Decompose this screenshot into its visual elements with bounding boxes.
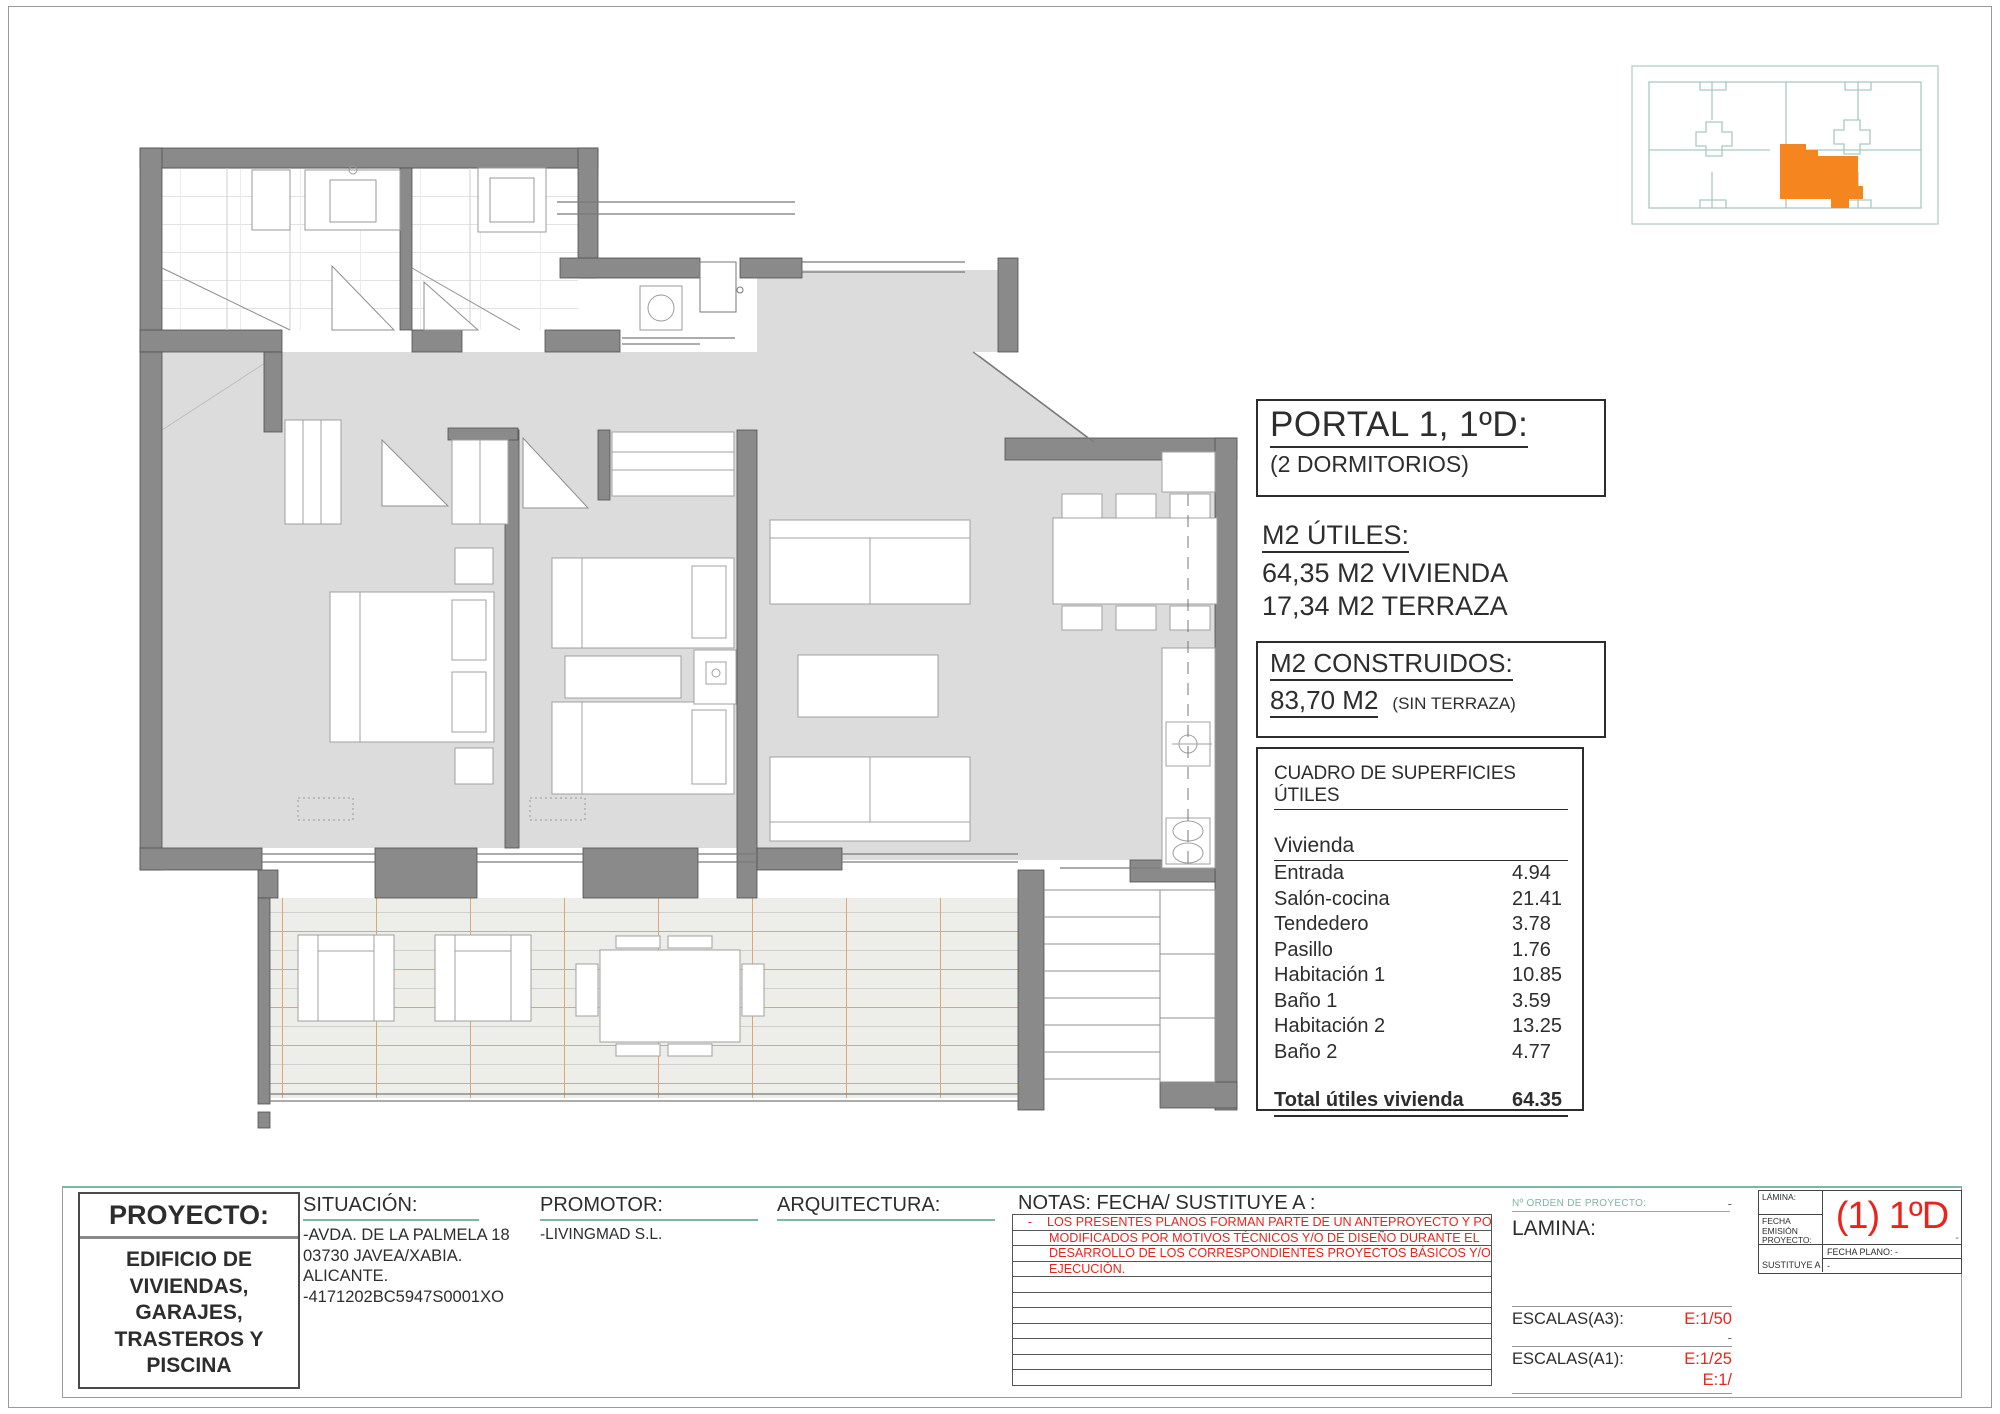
promotor-value: -LIVINGMAD S.L.: [540, 1226, 760, 1244]
portal-subtitle: (2 DORMITORIOS): [1270, 451, 1592, 478]
notas-table: - LOS PRESENTES PLANOS FORMAN PARTE DE U…: [1012, 1214, 1492, 1386]
stamp-empty-cell: [1759, 1245, 1823, 1259]
orden-proyecto-section: Nº ORDEN DE PROYECTO: -: [1512, 1198, 1732, 1212]
stamp-fecha-emision-label: FECHA EMISIÓN PROYECTO:: [1759, 1215, 1823, 1245]
stamp-unit-code: (1) 1ºD -: [1823, 1191, 1961, 1245]
notas-row-empty: [1013, 1339, 1491, 1355]
surface-table-group: Vivienda: [1274, 834, 1568, 861]
arquitectura-label: ARQUITECTURA:: [777, 1194, 997, 1217]
notas-row: MODIFICADOS POR MOTIVOS TÉCNICOS Y/O DE …: [1013, 1231, 1491, 1247]
escalas-a3-value: E:1/50: [1684, 1310, 1732, 1329]
m2-utiles-heading: M2 ÚTILES:: [1262, 520, 1409, 553]
arquitectura-underline: [777, 1219, 995, 1221]
m2-construidos-box: M2 CONSTRUIDOS: 83,70 M2 (SIN TERRAZA): [1256, 641, 1606, 738]
situacion-section: SITUACIÓN: -AVDA. DE LA PALMELA 18 03730…: [303, 1194, 543, 1307]
stamp-fecha-plano: FECHA PLANO: -: [1823, 1245, 1961, 1259]
orden-proyecto-value: -: [1728, 1196, 1732, 1211]
drawing-sheet: PORTAL 1, 1ºD: (2 DORMITORIOS) M2 ÚTILES…: [0, 0, 2000, 1414]
promotor-underline: [540, 1219, 758, 1221]
notas-row: - LOS PRESENTES PLANOS FORMAN PARTE DE U…: [1013, 1215, 1491, 1231]
notas-row-empty: [1013, 1293, 1491, 1309]
table-row: Habitación 110.85: [1274, 963, 1568, 989]
stamp-code-dash: -: [1955, 1233, 1958, 1244]
notas-row-empty: [1013, 1324, 1491, 1340]
surface-table-total: Total útiles vivienda 64.35: [1274, 1089, 1568, 1117]
escalas-a1-value2: E:1/: [1512, 1371, 1732, 1393]
notas-row-empty: [1013, 1277, 1491, 1293]
orden-underline: [1512, 1211, 1730, 1212]
notas-row-empty: [1013, 1370, 1491, 1385]
situacion-address: -AVDA. DE LA PALMELA 18 03730 JAVEA/XABI…: [303, 1225, 543, 1307]
surface-table-rows: Entrada4.94 Salón-cocina21.41 Tendedero3…: [1274, 861, 1568, 1065]
stamp-sustituye-value: -: [1823, 1259, 1961, 1272]
proyecto-divider: [80, 1236, 298, 1239]
portal-info-box: PORTAL 1, 1ºD: (2 DORMITORIOS): [1256, 399, 1606, 497]
situacion-underline: [303, 1219, 479, 1221]
stairwell: [1044, 890, 1215, 1082]
escalas-a3-row: ESCALAS(A3): E:1/50: [1512, 1307, 1732, 1331]
stamp-lamina-label: LÁMINA:: [1759, 1191, 1823, 1215]
m2-construidos-value: 83,70 M2: [1270, 685, 1378, 718]
stamp-sustituye-label: SUSTITUYE A: [1759, 1259, 1823, 1272]
proyecto-box: PROYECTO: EDIFICIO DE VIVIENDAS, GARAJES…: [78, 1192, 300, 1389]
surface-table-title: CUADRO DE SUPERFICIES ÚTILES: [1274, 763, 1568, 810]
escalas-a1-value: E:1/25: [1684, 1350, 1732, 1369]
proyecto-label: PROYECTO:: [80, 1200, 298, 1231]
m2-utiles-vivienda: 64,35 M2 VIVIENDA: [1262, 557, 1582, 590]
m2-construidos-note: (SIN TERRAZA): [1392, 694, 1515, 714]
escalas-a3-label: ESCALAS(A3):: [1512, 1310, 1624, 1329]
promotor-section: PROMOTOR: -LIVINGMAD S.L.: [540, 1194, 760, 1244]
portal-title: PORTAL 1, 1ºD:: [1270, 405, 1528, 448]
table-row: Entrada4.94: [1274, 861, 1568, 887]
notas-row-empty: [1013, 1308, 1491, 1324]
escalas-section: ESCALAS(A3): E:1/50 - ESCALAS(A1): E:1/2…: [1512, 1306, 1732, 1394]
m2-utiles-terraza: 17,34 M2 TERRAZA: [1262, 590, 1582, 623]
situacion-label: SITUACIÓN:: [303, 1194, 543, 1217]
notas-row: EJECUCIÓN.: [1013, 1262, 1491, 1278]
notas-row-empty: [1013, 1355, 1491, 1371]
orden-proyecto-label: Nº ORDEN DE PROYECTO:: [1512, 1198, 1732, 1209]
notas-row: DESARROLLO DE LOS CORRESPONDIENTES PROYE…: [1013, 1246, 1491, 1262]
table-row: Tendedero3.78: [1274, 912, 1568, 938]
notas-label: NOTAS: FECHA/ SUSTITUYE A :: [1018, 1192, 1315, 1215]
table-row: Baño 24.77: [1274, 1040, 1568, 1066]
proyecto-name: EDIFICIO DE VIVIENDAS, GARAJES, TRASTERO…: [80, 1247, 298, 1380]
table-row: Baño 13.59: [1274, 989, 1568, 1015]
m2-utiles-block: M2 ÚTILES: 64,35 M2 VIVIENDA 17,34 M2 TE…: [1262, 520, 1582, 623]
promotor-label: PROMOTOR:: [540, 1194, 760, 1217]
table-row: Pasillo1.76: [1274, 938, 1568, 964]
escalas-a1-row: ESCALAS(A1): E:1/25: [1512, 1347, 1732, 1371]
stamp-box: LÁMINA: (1) 1ºD - FECHA EMISIÓN PROYECTO…: [1758, 1190, 1962, 1274]
escalas-a1-label: ESCALAS(A1):: [1512, 1350, 1624, 1369]
escalas-dash: -: [1512, 1331, 1732, 1346]
table-row: Habitación 213.25: [1274, 1014, 1568, 1040]
table-row: Salón-cocina21.41: [1274, 887, 1568, 913]
lamina-label: LAMINA:: [1512, 1217, 1596, 1241]
escalas-rule: [1512, 1393, 1732, 1394]
arquitectura-section: ARQUITECTURA:: [777, 1194, 997, 1221]
m2-construidos-heading: M2 CONSTRUIDOS:: [1270, 648, 1513, 681]
surface-table-box: CUADRO DE SUPERFICIES ÚTILES Vivienda En…: [1256, 747, 1584, 1111]
key-plan: [1632, 66, 1938, 224]
